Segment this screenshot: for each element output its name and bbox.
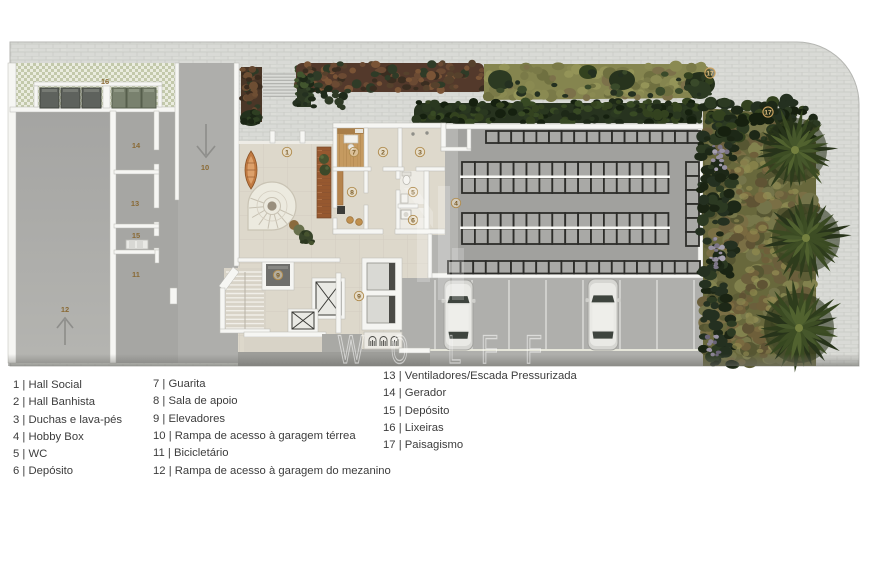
svg-text:7 | Guarita: 7 | Guarita: [153, 378, 206, 390]
svg-text:14 | Gerador: 14 | Gerador: [383, 387, 446, 399]
svg-text:9: 9: [357, 293, 361, 300]
svg-text:6: 6: [411, 217, 415, 224]
svg-text:17: 17: [706, 70, 714, 77]
svg-text:1 | Hall Social: 1 | Hall Social: [13, 379, 82, 391]
svg-text:4: 4: [454, 200, 458, 207]
svg-text:F: F: [525, 328, 542, 372]
svg-text:10 | Rampa de acesso à garagem: 10 | Rampa de acesso à garagem térrea: [153, 430, 356, 442]
svg-text:7: 7: [352, 149, 356, 156]
svg-text:8 | Sala de apoio: 8 | Sala de apoio: [153, 395, 238, 407]
svg-text:16: 16: [101, 77, 109, 86]
svg-text:11: 11: [132, 270, 140, 279]
svg-text:13 | Ventiladores/Escada Press: 13 | Ventiladores/Escada Pressurizada: [383, 370, 578, 382]
svg-text:14: 14: [132, 141, 141, 150]
svg-text:9: 9: [276, 272, 280, 279]
svg-text:11 | Bicicletário: 11 | Bicicletário: [153, 447, 229, 459]
svg-text:15: 15: [132, 231, 140, 240]
svg-text:4 | Hobby Box: 4 | Hobby Box: [13, 431, 84, 443]
svg-text:17 | Paisagismo: 17 | Paisagismo: [383, 439, 463, 451]
svg-text:F: F: [481, 328, 498, 372]
svg-text:9 | Elevadores: 9 | Elevadores: [153, 413, 225, 425]
svg-text:L: L: [448, 328, 461, 372]
svg-text:2: 2: [381, 149, 385, 156]
svg-text:5 | WC: 5 | WC: [13, 448, 47, 460]
svg-text:13: 13: [131, 199, 139, 208]
svg-text:1: 1: [285, 149, 289, 156]
svg-text:12: 12: [61, 305, 69, 314]
svg-text:8: 8: [350, 189, 354, 196]
svg-text:6 | Depósito: 6 | Depósito: [13, 465, 73, 477]
svg-text:3 | Duchas e lava-pés: 3 | Duchas e lava-pés: [13, 414, 122, 426]
svg-text:16 | Lixeiras: 16 | Lixeiras: [383, 422, 444, 434]
svg-text:2 | Hall Banhista: 2 | Hall Banhista: [13, 396, 96, 408]
svg-text:10: 10: [201, 163, 209, 172]
svg-text:15 | Depósito: 15 | Depósito: [383, 405, 449, 417]
svg-text:3: 3: [418, 149, 422, 156]
svg-text:12 | Rampa de acesso à garagem: 12 | Rampa de acesso à garagem do mezani…: [153, 465, 391, 477]
svg-text:W: W: [338, 328, 364, 372]
svg-text:O: O: [391, 328, 408, 372]
svg-text:17: 17: [764, 109, 772, 116]
